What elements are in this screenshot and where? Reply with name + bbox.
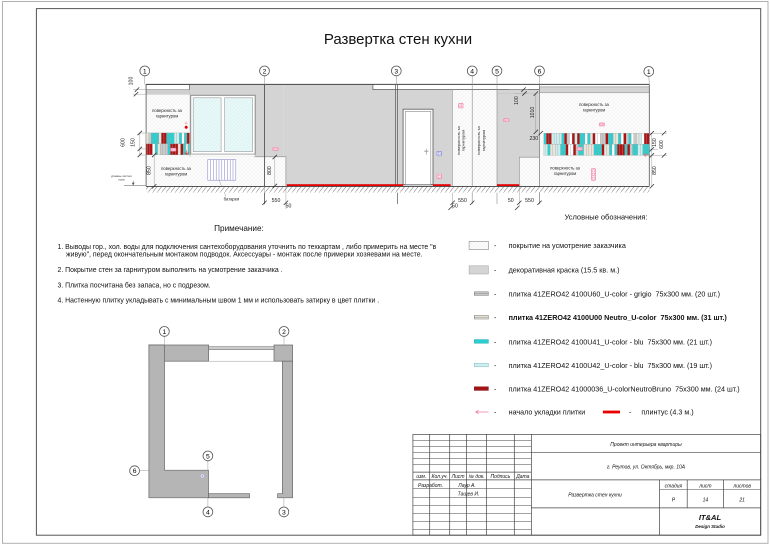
- svg-text:550: 550: [458, 198, 467, 204]
- svg-text:лист: лист: [698, 484, 711, 490]
- svg-text:230: 230: [529, 136, 538, 142]
- svg-text:батарея: батарея: [224, 197, 240, 202]
- svg-text:поверхность за: поверхность за: [152, 108, 182, 113]
- svg-text:50: 50: [508, 198, 514, 204]
- svg-text:1: 1: [163, 329, 167, 336]
- svg-text:2. Покрытие стен за гарнитуром: 2. Покрытие стен за гарнитуром выполнить…: [58, 267, 283, 274]
- svg-text:1: 1: [647, 69, 651, 76]
- svg-text:Развертка стен кухни: Развертка стен кухни: [324, 31, 472, 48]
- svg-text:1: 1: [143, 68, 147, 75]
- svg-text:4: 4: [470, 68, 474, 75]
- svg-text:Лаур А.: Лаур А.: [457, 483, 475, 489]
- svg-text:600: 600: [659, 140, 665, 149]
- svg-text:5: 5: [206, 453, 210, 460]
- svg-text:плитка 41ZERO42 4100U41_U-colo: плитка 41ZERO42 4100U41_U-color - blu 75…: [509, 337, 712, 346]
- svg-text:3: 3: [394, 68, 398, 75]
- svg-text:начало укладки плитки: начало укладки плитки: [509, 408, 586, 417]
- svg-text:150: 150: [652, 138, 658, 147]
- svg-text:пола: пола: [118, 177, 125, 181]
- svg-text:1. Выводы гор., хол. воды для: 1. Выводы гор., хол. воды для подключени…: [58, 243, 437, 251]
- svg-text:850: 850: [652, 166, 658, 175]
- svg-text:Развертка стен кухни: Развертка стен кухни: [568, 493, 622, 499]
- svg-text:2: 2: [282, 329, 286, 336]
- svg-text:гарнитуром: гарнитуром: [554, 171, 576, 176]
- svg-text:6: 6: [133, 468, 137, 475]
- svg-text:3. Плитка посчитана без запаса: 3. Плитка посчитана без запаса, но с под…: [58, 282, 211, 290]
- svg-text:плитка 41ZERO42 41000036_U-col: плитка 41ZERO42 41000036_U-colorNeutroBr…: [509, 385, 740, 394]
- svg-text:Условные обозначения:: Условные обозначения:: [564, 213, 647, 222]
- svg-text:3: 3: [282, 509, 286, 516]
- svg-text:Тащев И.: Тащев И.: [458, 491, 480, 497]
- svg-text:стадия: стадия: [665, 484, 683, 490]
- svg-text:гарнитуром: гарнитуром: [461, 130, 466, 152]
- svg-text:50: 50: [452, 204, 458, 210]
- svg-text:плинтус (4.3 м.): плинтус (4.3 м.): [641, 408, 693, 417]
- svg-text:Лист: Лист: [451, 474, 465, 480]
- svg-text:декоративная краска (15.5 кв.: декоративная краска (15.5 кв. м.): [509, 265, 620, 274]
- svg-text:Design Studio: Design Studio: [695, 524, 725, 529]
- svg-text:4. Настенную плитку укладывать: 4. Настенную плитку укладывать с минимал…: [58, 297, 380, 304]
- svg-text:листов: листов: [732, 484, 751, 490]
- svg-text:изм.: изм.: [416, 474, 426, 480]
- svg-text:гарнитуром: гарнитуром: [583, 108, 605, 113]
- svg-text:Проект интерьера квартиры: Проект интерьера квартиры: [610, 442, 682, 448]
- svg-text:1010: 1010: [530, 107, 536, 119]
- svg-text:100: 100: [514, 96, 520, 105]
- svg-text:2: 2: [263, 68, 267, 75]
- svg-text:550: 550: [525, 198, 534, 204]
- svg-text:600: 600: [121, 138, 127, 147]
- svg-text:покрытие на усмотрение заказчи: покрытие на усмотрение заказчика: [509, 241, 626, 250]
- svg-text:21: 21: [738, 498, 745, 504]
- svg-text:Дата: Дата: [515, 474, 529, 480]
- svg-text:4: 4: [206, 509, 210, 516]
- svg-text:100: 100: [129, 77, 135, 86]
- svg-text:50: 50: [286, 204, 292, 210]
- svg-text:150: 150: [131, 138, 137, 147]
- svg-text:14: 14: [703, 498, 709, 504]
- svg-text:поверхность за: поверхность за: [161, 166, 191, 171]
- svg-text:поверхность за: поверхность за: [550, 166, 580, 171]
- svg-text:г. Реутов, ул. Октябрь, мкр. 1: г. Реутов, ул. Октябрь, мкр. 10А: [607, 465, 686, 471]
- svg-text:гарнитуром: гарнитуром: [156, 114, 178, 119]
- svg-text:Кол.уч.: Кол.уч.: [432, 474, 448, 480]
- svg-text:Примечание:: Примечание:: [214, 224, 264, 233]
- svg-text:850: 850: [147, 166, 153, 175]
- svg-text:Разработ.: Разработ.: [418, 483, 443, 489]
- svg-text:живую", перед окончательным мо: живую", перед окончательным монтажом под…: [66, 252, 423, 259]
- svg-text:IT&AL: IT&AL: [699, 513, 722, 522]
- svg-text:плитка 41ZERO42 4100U60_U-colo: плитка 41ZERO42 4100U60_U-color - grigio…: [509, 290, 720, 299]
- svg-text:№ док.: № док.: [469, 474, 485, 480]
- svg-text:6: 6: [538, 68, 542, 75]
- svg-text:плитка 41ZERO42 4100U42_U-colo: плитка 41ZERO42 4100U42_U-color - blu 75…: [509, 361, 712, 370]
- svg-text:550: 550: [272, 198, 281, 204]
- svg-text:Подпись: Подпись: [490, 474, 510, 480]
- svg-text:5: 5: [495, 68, 499, 75]
- svg-text:гарнитуром: гарнитуром: [481, 130, 486, 152]
- svg-text:поверхность за: поверхность за: [579, 102, 609, 107]
- svg-text:плитка 41ZERO42 4100U00 Neutro: плитка 41ZERO42 4100U00 Neutro_U-color 7…: [509, 313, 728, 322]
- svg-text:800: 800: [267, 166, 273, 175]
- svg-text:гарнитуром: гарнитуром: [165, 172, 187, 177]
